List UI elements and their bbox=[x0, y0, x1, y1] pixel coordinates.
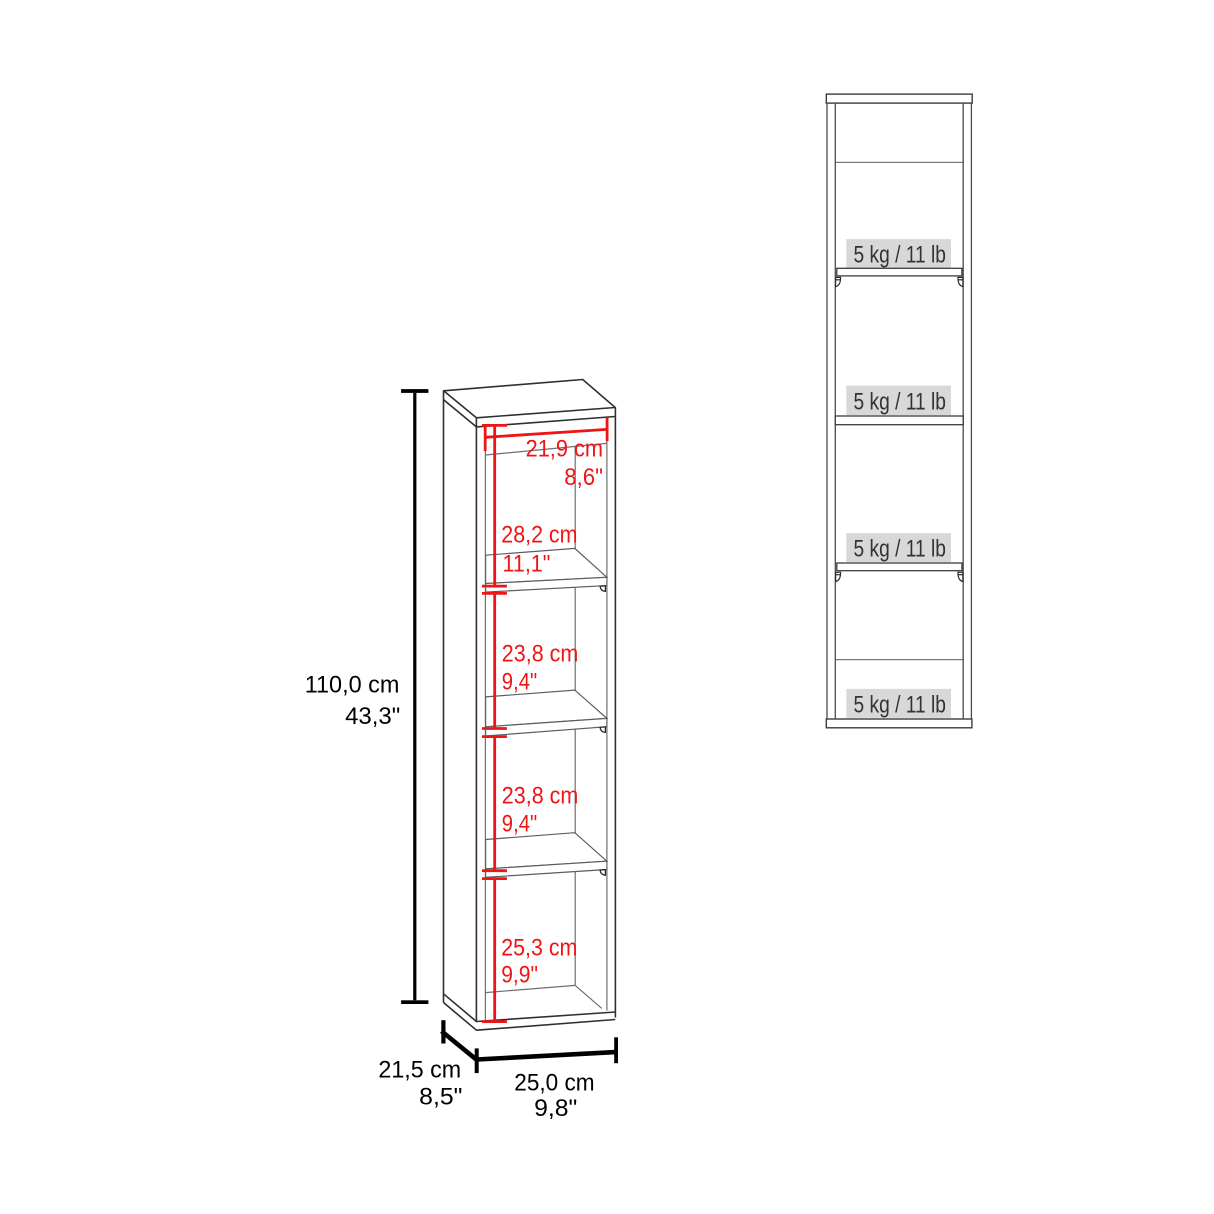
svg-text:9,4": 9,4" bbox=[502, 668, 537, 695]
svg-text:5 kg / 11 lb: 5 kg / 11 lb bbox=[854, 388, 946, 415]
svg-text:21,5 cm: 21,5 cm bbox=[378, 1056, 461, 1083]
svg-text:23,8 cm: 23,8 cm bbox=[502, 640, 579, 667]
svg-text:9,9": 9,9" bbox=[501, 962, 538, 989]
svg-text:110,0 cm: 110,0 cm bbox=[305, 672, 400, 699]
svg-text:5 kg / 11 lb: 5 kg / 11 lb bbox=[854, 536, 946, 563]
svg-text:8,6": 8,6" bbox=[564, 464, 603, 491]
svg-text:5 kg / 11 lb: 5 kg / 11 lb bbox=[854, 242, 946, 269]
svg-text:25,0 cm: 25,0 cm bbox=[514, 1070, 594, 1097]
svg-text:21,9 cm: 21,9 cm bbox=[526, 435, 603, 462]
svg-text:25,3 cm: 25,3 cm bbox=[501, 935, 577, 962]
svg-text:23,8 cm: 23,8 cm bbox=[502, 783, 579, 810]
svg-text:43,3": 43,3" bbox=[345, 703, 400, 730]
svg-text:5 kg / 11 lb: 5 kg / 11 lb bbox=[854, 691, 946, 718]
svg-text:8,5": 8,5" bbox=[419, 1083, 462, 1110]
svg-text:28,2 cm: 28,2 cm bbox=[501, 522, 577, 549]
svg-text:9,8": 9,8" bbox=[534, 1095, 577, 1122]
svg-text:11,1": 11,1" bbox=[503, 551, 551, 578]
svg-text:9,4": 9,4" bbox=[502, 811, 537, 838]
